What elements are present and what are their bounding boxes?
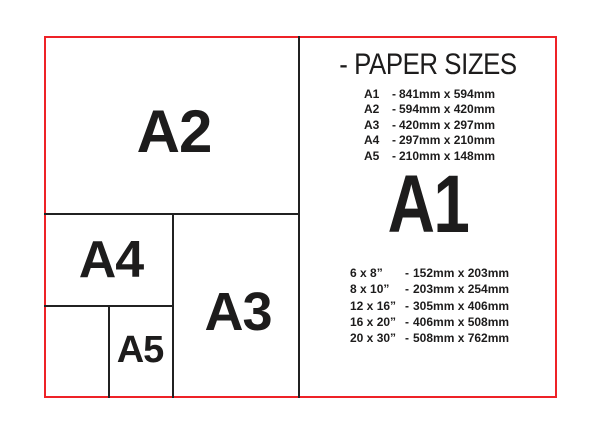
size-row: A3-420mm x 297mm bbox=[364, 118, 495, 133]
size-row: A2-594mm x 420mm bbox=[364, 102, 495, 117]
size-row: A1-841mm x 594mm bbox=[364, 87, 495, 102]
size-sep: - bbox=[401, 330, 413, 346]
size-dims: 152mm x 203mm bbox=[413, 265, 509, 281]
size-row: A4-297mm x 210mm bbox=[364, 133, 495, 148]
size-name: A3 bbox=[364, 118, 389, 133]
divider-main-vertical bbox=[298, 36, 300, 398]
size-dims: 305mm x 406mm bbox=[413, 298, 509, 314]
size-dims: 508mm x 762mm bbox=[413, 330, 509, 346]
size-dims: 420mm x 297mm bbox=[399, 118, 495, 133]
size-sep: - bbox=[401, 314, 413, 330]
size-sep: - bbox=[401, 265, 413, 281]
size-name: 20 x 30” bbox=[350, 330, 401, 346]
size-name: A5 bbox=[364, 149, 389, 164]
size-name: A4 bbox=[364, 133, 389, 148]
big-a1-label: A1 bbox=[325, 164, 531, 246]
label-a4: A4 bbox=[79, 234, 143, 286]
size-name: A2 bbox=[364, 102, 389, 117]
size-sep: - bbox=[389, 133, 399, 148]
label-a5: A5 bbox=[117, 331, 164, 369]
label-a2: A2 bbox=[137, 102, 212, 162]
inch-size-list: 6 x 8”-152mm x 203mm8 x 10”-203mm x 254m… bbox=[350, 265, 509, 346]
size-sep: - bbox=[389, 118, 399, 133]
size-name: 8 x 10” bbox=[350, 281, 401, 297]
a-size-list: A1-841mm x 594mmA2-594mm x 420mmA3-420mm… bbox=[364, 87, 495, 164]
size-row: 6 x 8”-152mm x 203mm bbox=[350, 265, 509, 281]
size-sep: - bbox=[401, 281, 413, 297]
size-name: A1 bbox=[364, 87, 389, 102]
size-dims: 297mm x 210mm bbox=[399, 133, 495, 148]
size-dims: 841mm x 594mm bbox=[399, 87, 495, 102]
size-name: 12 x 16” bbox=[350, 298, 401, 314]
size-row: 8 x 10”-203mm x 254mm bbox=[350, 281, 509, 297]
size-row: 20 x 30”-508mm x 762mm bbox=[350, 330, 509, 346]
size-dims: 203mm x 254mm bbox=[413, 281, 509, 297]
label-a3: A3 bbox=[204, 285, 271, 339]
divider-left-of-a5 bbox=[108, 305, 110, 398]
size-sep: - bbox=[389, 102, 399, 117]
size-name: 16 x 20” bbox=[350, 314, 401, 330]
size-sep: - bbox=[389, 87, 399, 102]
size-row: 12 x 16”-305mm x 406mm bbox=[350, 298, 509, 314]
size-name: 6 x 8” bbox=[350, 265, 401, 281]
panel-title: - PAPER SIZES bbox=[318, 50, 538, 80]
size-dims: 594mm x 420mm bbox=[399, 102, 495, 117]
size-row: 16 x 20”-406mm x 508mm bbox=[350, 314, 509, 330]
paper-sizes-infographic: A2 A4 A3 A5 - PAPER SIZES A1-841mm x 594… bbox=[0, 0, 600, 424]
size-dims: 406mm x 508mm bbox=[413, 314, 509, 330]
size-sep: - bbox=[401, 298, 413, 314]
